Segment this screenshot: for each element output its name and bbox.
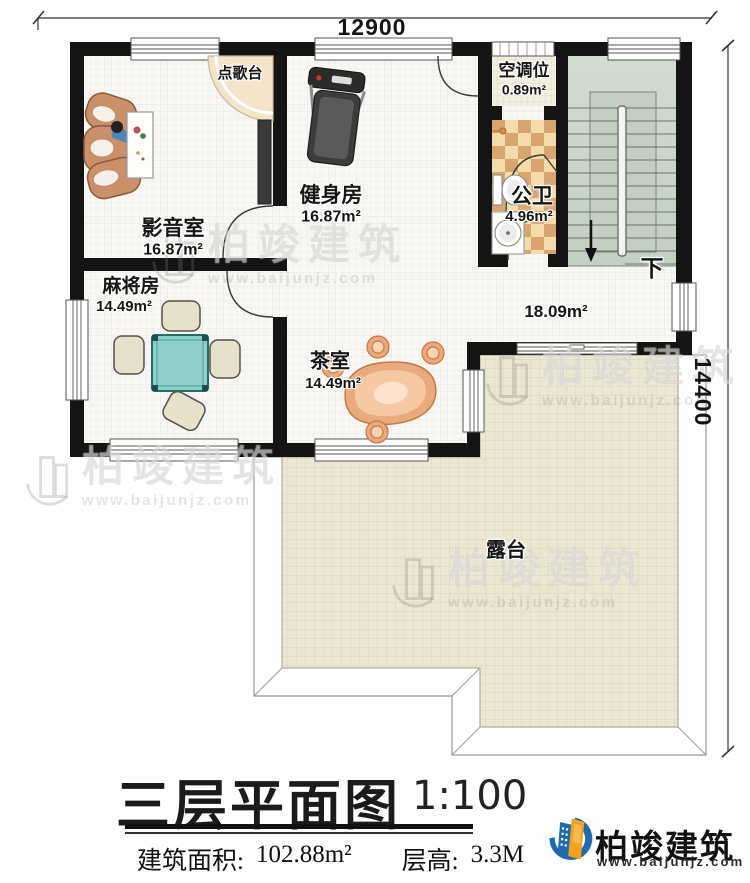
room-label-karaoke: 点歌台 [217,66,262,82]
brand-website: www.baijunjz.com [597,854,744,869]
window-top-stair [608,38,680,60]
staircase [568,56,676,266]
room-area-ac: 0.89m² [502,83,546,98]
room-area-media: 16.87m² [143,243,203,260]
stat-height-value: 3.3M [471,841,524,877]
furniture-tv-cabinet [127,112,153,178]
room-label-media: 影音室 [142,218,205,240]
stat-height-label: 层高: [402,841,459,877]
window-left-mahjong [66,300,88,400]
drawing-scale: 1:100 [412,773,527,819]
slider-hall-terrace [517,343,637,354]
room-area-mahjong: 14.49m² [96,299,152,315]
room-label-bath: 公卫 [511,186,553,208]
title-rule-thick [125,824,473,829]
furniture-tv [258,120,271,204]
room-label-mahjong: 麻将房 [102,277,159,297]
stat-area-value: 102.88m² [256,841,352,877]
window-top-media [131,38,219,60]
window-tea-right [463,370,484,432]
window-right-hall [672,283,696,331]
room-label-gym: 健身房 [300,185,363,207]
brand-logo-icon [545,810,595,868]
window-bottom-mahjong [110,439,238,461]
brand-logo: 柏竣建筑 www.baijunjz.com [545,810,745,876]
room-area-gym: 16.87m² [301,210,361,227]
stair-down-label: 下 [641,256,664,280]
room-label-tea: 茶室 [310,352,350,373]
floor-plan-page: 柏竣建筑 www.baijunjz.com 柏竣建筑 www.baijunjz.… [0,0,750,883]
dimension-right: 14400 [691,358,715,427]
dimension-top: 12900 [338,15,407,39]
floor-plan-drawing [0,0,750,883]
room-area-hall: 18.09m² [524,303,587,321]
room-label-ac: 空调位 [499,62,550,80]
room-area-bath: 4.96m² [505,209,553,225]
window-top-gym [315,38,452,60]
vent-top-ac [492,42,554,56]
title-rule-thin [125,832,473,834]
window-bottom-tea [315,439,428,461]
room-label-terrace: 露台 [486,541,526,562]
room-area-tea: 14.49m² [305,376,361,392]
building-stats: 建筑面积: 102.88m² 层高: 3.3M [137,841,524,877]
stat-area-label: 建筑面积: [137,841,244,877]
